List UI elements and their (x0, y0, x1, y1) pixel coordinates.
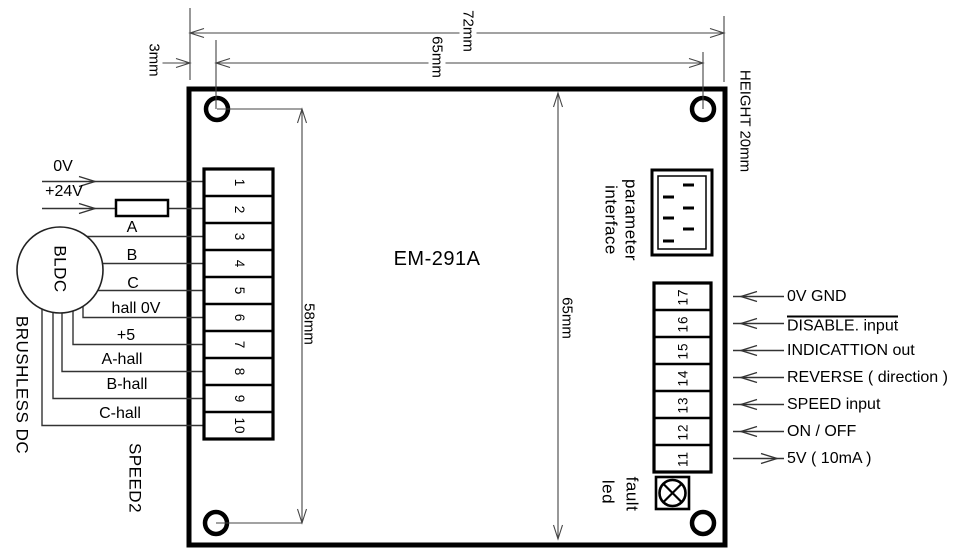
fuse-symbol (116, 200, 168, 216)
terminal-number-10: 10 (232, 417, 246, 434)
supply-0v-label: 0V (53, 159, 73, 175)
a-hall-label: A-hall (102, 352, 143, 368)
phase-b-label: B (127, 248, 138, 264)
hall-0v-label: hall 0V (112, 301, 161, 317)
fault-led-symbol (656, 477, 689, 509)
terminal-number-2: 2 (232, 205, 246, 214)
terminal-number-7: 7 (232, 340, 246, 349)
terminal-number-11: 11 (676, 450, 690, 466)
terminal-number-1: 1 (232, 178, 246, 187)
terminal-number-3: 3 (232, 232, 246, 241)
signal-disable-label: DISABLE. input (787, 315, 898, 334)
signal-speed-label: SPEED input (787, 397, 880, 413)
dim-3mm-label: 3mm (146, 41, 163, 78)
signal-reverse-label: REVERSE ( direction ) (787, 370, 948, 386)
plus5-label: +5 (117, 328, 135, 344)
drawing-linework (0, 0, 968, 558)
fault-led-caption-fault: fault (624, 477, 641, 512)
terminal-number-6: 6 (232, 313, 246, 322)
signal-onoff-label: ON / OFF (787, 424, 856, 440)
terminal-number-12: 12 (676, 423, 690, 440)
signal-indication-label: INDICATTION out (787, 343, 915, 359)
b-hall-label: B-hall (107, 377, 148, 393)
phase-c-label: C (127, 276, 139, 292)
dim-72mm-label: 72mm (460, 8, 477, 54)
motor-bldc-label: BLDC (52, 245, 69, 292)
dim-65mm-mid-label: 65mm (560, 297, 575, 339)
dim-58mm-label: 58mm (302, 303, 317, 345)
terminal-number-9: 9 (232, 394, 246, 403)
dim-height-20mm-label: HEIGHT 20mm (738, 70, 753, 172)
signal-5v-label: 5V ( 10mA ) (787, 451, 871, 467)
terminal-number-4: 4 (232, 259, 246, 268)
terminal-number-5: 5 (232, 286, 246, 295)
dim-65mm-top-label: 65mm (429, 34, 446, 80)
speed2-label: SPEED2 (127, 443, 144, 513)
right-signal-lines (733, 292, 784, 464)
c-hall-label: C-hall (99, 406, 141, 422)
em291a-dimension-drawing: 3mm 65mm 72mm HEIGHT 20mm 58mm 65mm EM-2… (0, 0, 968, 558)
signal-0v-gnd-label: 0V GND (787, 289, 847, 305)
disable-overline-text: DISABLE. input (787, 315, 898, 334)
connector-label-interface: interface (603, 185, 620, 255)
phase-a-label: A (127, 220, 138, 236)
fault-led-caption-led: led (600, 480, 617, 504)
terminal-number-16: 16 (676, 315, 690, 332)
terminal-number-14: 14 (676, 369, 690, 386)
terminal-number-15: 15 (676, 342, 690, 359)
mounting-hole-bottom-right (692, 512, 714, 534)
terminal-number-17: 17 (676, 288, 690, 305)
supply-24v-label: +24V (45, 184, 83, 200)
connector-label-parameter: parameter (623, 179, 640, 261)
brushless-dc-caption: BRUSHLESS DC (14, 316, 31, 454)
parameter-interface-connector (652, 170, 712, 255)
terminal-number-13: 13 (676, 396, 690, 413)
board-model-label: EM-291A (394, 249, 481, 269)
terminal-number-8: 8 (232, 367, 246, 376)
